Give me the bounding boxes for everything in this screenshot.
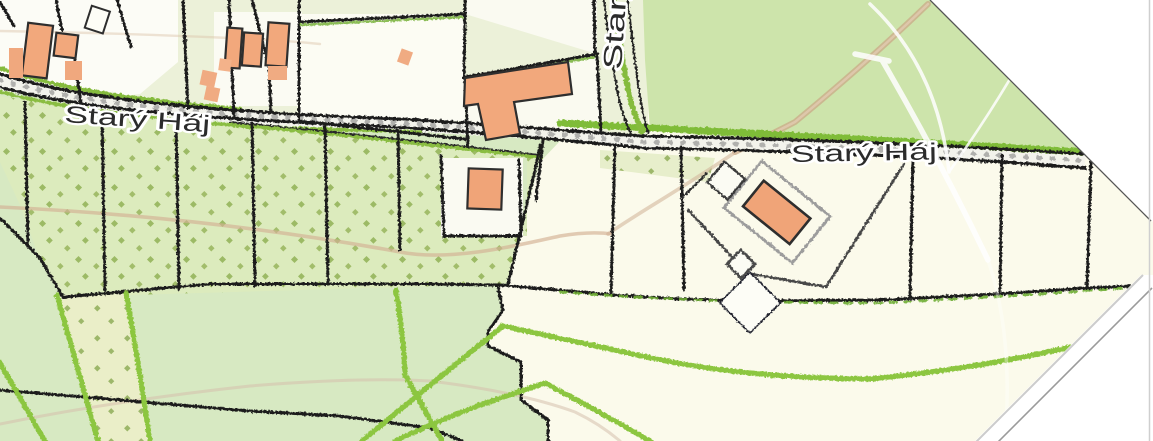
svg-text:Starý Háj: Starý Háj [791,138,937,167]
